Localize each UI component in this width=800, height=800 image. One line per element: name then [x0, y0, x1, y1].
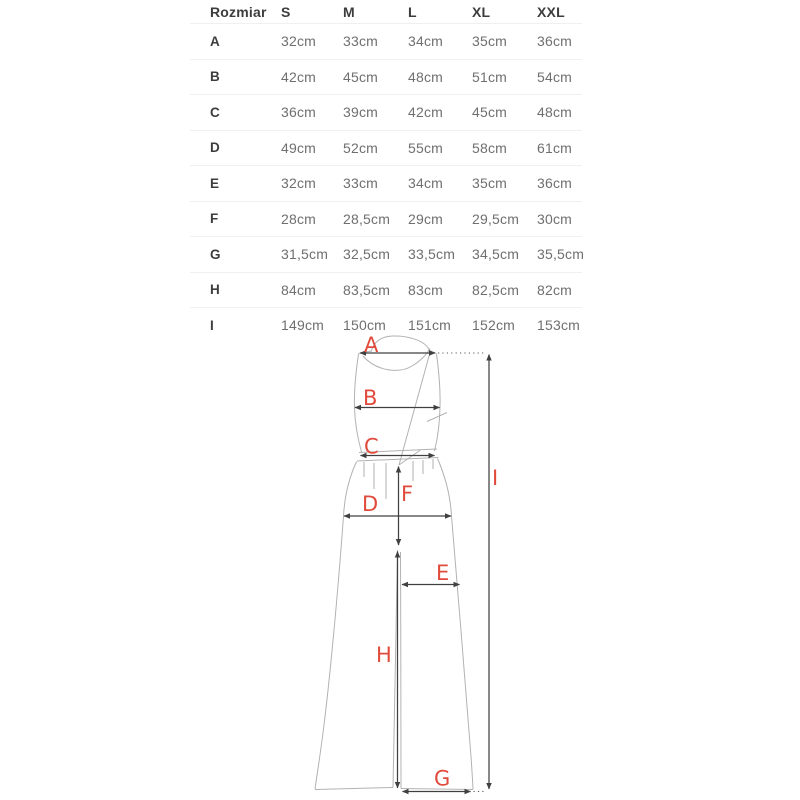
table-cell: 45cm: [343, 69, 408, 85]
table-row: H 84cm 83,5cm 83cm 82,5cm 82cm: [190, 273, 582, 309]
row-label: B: [210, 69, 281, 84]
row-label: H: [210, 282, 281, 297]
row-label: F: [210, 211, 281, 226]
table-cell: 42cm: [408, 104, 472, 120]
bodice-right-seam: [435, 354, 441, 451]
table-cell: 32cm: [281, 33, 343, 49]
row-label: A: [210, 34, 281, 49]
bust-dart: [427, 413, 447, 422]
row-label: D: [210, 140, 281, 155]
table-cell: 28cm: [281, 211, 343, 227]
table-row: B 42cm 45cm 48cm 51cm 54cm: [190, 60, 582, 96]
table-cell: 36cm: [537, 175, 582, 191]
size-guide-page: { "colors": { "label_red": "#e04b3b", "m…: [0, 0, 800, 800]
table-cell: 32,5cm: [343, 246, 408, 262]
left-leg-hem: [315, 788, 393, 790]
table-cell: 82cm: [537, 282, 582, 298]
pants-right-outer-seam: [438, 459, 474, 790]
table-cell: 48cm: [537, 104, 582, 120]
table-cell: 29cm: [408, 211, 472, 227]
row-label: G: [210, 247, 281, 262]
measurement-label-d: D: [362, 492, 378, 516]
measurement-label-b: B: [363, 386, 377, 410]
collar-top: [371, 336, 431, 352]
row-label: E: [210, 176, 281, 191]
table-cell: 61cm: [537, 140, 582, 156]
table-cell: 33,5cm: [408, 246, 472, 262]
table-cell: 35cm: [472, 175, 537, 191]
pants-right-inner-seam: [401, 552, 402, 789]
garment-measurement-diagram: A B C D E F G H I: [290, 330, 505, 800]
pants-left-outer-seam: [315, 462, 357, 790]
table-cell: 35cm: [472, 33, 537, 49]
table-cell: 55cm: [408, 140, 472, 156]
table-cell: 83cm: [408, 282, 472, 298]
measurement-label-a: A: [364, 333, 379, 357]
table-cell: 51cm: [472, 69, 537, 85]
table-cell: 82,5cm: [472, 282, 537, 298]
row-label: C: [210, 105, 281, 120]
measurement-arrows: [344, 353, 489, 792]
table-cell: 45cm: [472, 104, 537, 120]
table-cell: 33cm: [343, 175, 408, 191]
row-label: I: [210, 318, 281, 333]
table-cell: 30cm: [537, 211, 582, 227]
measurement-label-h: H: [376, 643, 392, 667]
table-cell: 48cm: [408, 69, 472, 85]
table-cell: 28,5cm: [343, 211, 408, 227]
table-cell: 33cm: [343, 33, 408, 49]
measurement-label-e: E: [436, 561, 449, 585]
table-cell: 54cm: [537, 69, 582, 85]
table-row: A 32cm 33cm 34cm 35cm 36cm: [190, 24, 582, 60]
size-table-header-cell: XXL: [537, 4, 582, 20]
table-cell: 36cm: [537, 33, 582, 49]
measurement-labels: A B C D E F G H I: [362, 333, 498, 791]
table-cell: 36cm: [281, 104, 343, 120]
table-row: G 31,5cm 32,5cm 33,5cm 34,5cm 35,5cm: [190, 237, 582, 273]
size-table-header-cell: S: [281, 4, 343, 20]
size-table-header-cell: Rozmiar: [210, 4, 281, 20]
table-cell: 153cm: [537, 317, 582, 333]
table-cell: 35,5cm: [537, 246, 584, 262]
table-cell: 32cm: [281, 175, 343, 191]
size-table: Rozmiar S M L XL XXL A 32cm 33cm 34cm 35…: [190, 0, 582, 343]
size-table-header-cell: M: [343, 4, 408, 20]
table-cell: 42cm: [281, 69, 343, 85]
table-cell: 34,5cm: [472, 246, 537, 262]
garment-outline-sketch: [315, 336, 473, 790]
table-cell: 52cm: [343, 140, 408, 156]
measurement-label-i: I: [492, 466, 498, 490]
size-table-header-cell: XL: [472, 4, 537, 20]
size-table-header-row: Rozmiar S M L XL XXL: [190, 0, 582, 24]
size-table-header-cell: L: [408, 4, 472, 20]
measurement-label-g: G: [434, 767, 450, 791]
table-cell: 39cm: [343, 104, 408, 120]
bodice-left-seam: [354, 354, 361, 452]
table-cell: 83,5cm: [343, 282, 408, 298]
table-row: E 32cm 33cm 34cm 35cm 36cm: [190, 166, 582, 202]
table-cell: 84cm: [281, 282, 343, 298]
table-cell: 58cm: [472, 140, 537, 156]
measurement-label-f: F: [401, 482, 413, 506]
table-row: C 36cm 39cm 42cm 45cm 48cm: [190, 95, 582, 131]
pants-left-inner-seam: [393, 550, 398, 788]
table-cell: 34cm: [408, 33, 472, 49]
measurement-label-c: C: [364, 435, 379, 459]
table-cell: 29,5cm: [472, 211, 537, 227]
table-row: F 28cm 28,5cm 29cm 29,5cm 30cm: [190, 202, 582, 238]
table-cell: 34cm: [408, 175, 472, 191]
table-cell: 31,5cm: [281, 246, 343, 262]
table-cell: 49cm: [281, 140, 343, 156]
table-row: D 49cm 52cm 55cm 58cm 61cm: [190, 131, 582, 167]
